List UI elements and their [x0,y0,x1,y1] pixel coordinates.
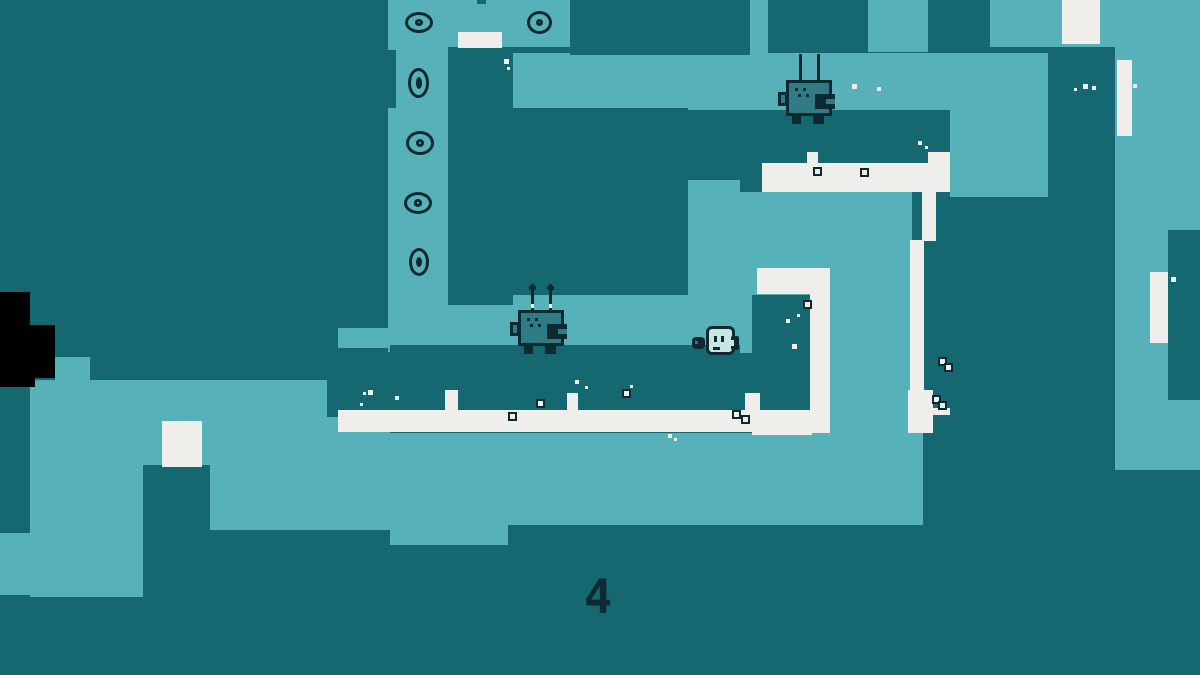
robot-antenna-icon [799,54,802,82]
terrain-light [990,0,1048,47]
platform-white [1150,272,1168,343]
terrain-dark [928,0,990,53]
outlined-dot [938,401,947,410]
dust-speckle [674,438,677,441]
dust-speckle [1083,84,1088,89]
dust-speckle [363,392,366,395]
robot-eye-dot [798,94,801,97]
robot-body [518,310,564,346]
robot-mouth-icon [547,324,567,339]
terrain-light [1110,400,1200,470]
dust-speckle [395,396,399,400]
terrain-light [623,433,923,525]
dust-speckle [852,84,857,89]
robot-eye-dot [795,88,798,91]
platform-white [757,268,830,294]
robot-leg [792,114,801,124]
terrain-light [390,433,508,545]
dust-speckle [1133,84,1137,88]
outlined-dot [860,168,869,177]
outlined-dot [741,415,750,424]
platform-white [910,240,924,392]
robot-arm [778,92,788,106]
platform-white [445,390,458,412]
terrain-dark [1110,470,1200,675]
terrain-light [508,433,623,525]
robot-eye-dot [530,324,533,327]
player-eye [721,336,724,342]
ring-collectible [405,12,433,33]
robot-mouth-icon [815,94,835,109]
ring-collectible [409,248,429,276]
outlined-dot [622,389,631,398]
ring-collectible [404,192,432,214]
terrain-dark [390,345,740,420]
terrain-dark [448,47,513,305]
terrain-dark [143,465,210,597]
terrain-dark [1048,47,1115,675]
terrain-light [868,0,928,52]
terrain-dark [513,108,688,295]
terrain-light [30,380,147,597]
terrain-light [950,110,1048,200]
platform-white [567,393,578,412]
dust-speckle [507,67,510,70]
terrain-dark [388,50,396,108]
platform-white [1117,60,1132,136]
robot-antenna-icon [817,54,820,82]
void-black [0,325,55,378]
dust-speckle [585,386,588,389]
terrain-dark [768,0,868,52]
terrain-dark [688,113,740,180]
robot-leg [524,344,533,354]
dust-speckle [1074,88,1077,91]
platform-white [745,393,760,412]
platform-white [338,410,830,432]
robot-enemy [518,284,566,356]
robot-eye-dot [806,94,809,97]
dust-speckle [368,390,373,395]
dust-speckle [797,314,800,317]
dust-speckle [668,434,672,438]
platform-white [922,177,936,241]
terrain-light [750,0,768,54]
ring-hole [415,19,424,26]
game-viewport[interactable]: 4 [0,0,1200,675]
void-black [0,292,30,326]
terrain-light [688,180,740,292]
outlined-dot [813,167,822,176]
player-fist-icon [692,337,705,349]
player-ear-icon [731,336,739,350]
robot-body [786,80,832,116]
terrain-dark [935,197,1050,675]
ring-collectible [527,11,552,34]
dust-speckle [504,59,509,64]
player-mouth [713,347,720,350]
ring-hole [416,77,422,88]
platform-white [928,152,950,178]
robot-eye-dot [527,318,530,321]
terrain-dark [0,386,30,533]
outlined-dot [508,412,517,421]
robot-eye-dot [538,324,541,327]
robot-arm [510,322,520,336]
platform-white [458,32,502,48]
terrain-dark [740,110,762,192]
ring-hole [536,19,544,27]
ring-collectible [408,68,429,98]
level-counter: 4 [568,574,628,621]
robot-leg [813,114,824,124]
void-black [0,378,35,387]
terrain-light [388,0,450,352]
dust-speckle [792,344,797,349]
outlined-dot [944,363,953,372]
platform-white [1062,0,1100,44]
player-eye [714,336,717,342]
terrain-dark [752,295,810,410]
dust-speckle [786,319,790,323]
dust-speckle [925,146,928,149]
ring-hole [414,199,423,206]
terrain-light [55,357,90,386]
dust-speckle [575,380,579,384]
platform-white [162,421,202,467]
outlined-dot [732,410,741,419]
terrain-dark [1168,230,1200,400]
terrain-light [338,328,390,348]
platform-white [807,152,818,164]
robot-enemy [786,54,834,126]
ring-collectible [406,131,434,155]
robot-eye-dot [535,318,538,321]
terrain-dark [477,0,486,4]
terrain-dark [570,0,750,55]
outlined-dot [803,300,812,309]
platform-white [908,390,933,433]
dust-speckle [360,403,363,406]
outlined-dot [536,399,545,408]
dust-speckle [372,412,376,416]
ring-hole [416,139,425,147]
dust-speckle [1171,277,1176,282]
dust-speckle [918,141,922,145]
robot-eye-dot [803,88,806,91]
robot-antenna-icon [531,284,534,312]
robot-leg [545,344,556,354]
robot-antenna-icon [549,284,552,312]
dust-speckle [630,385,633,388]
terrain-light [0,533,30,595]
player-body [706,326,735,355]
player-character [692,326,738,358]
dust-speckle [1092,86,1096,90]
dust-speckle [877,87,881,91]
ring-hole [416,257,422,267]
